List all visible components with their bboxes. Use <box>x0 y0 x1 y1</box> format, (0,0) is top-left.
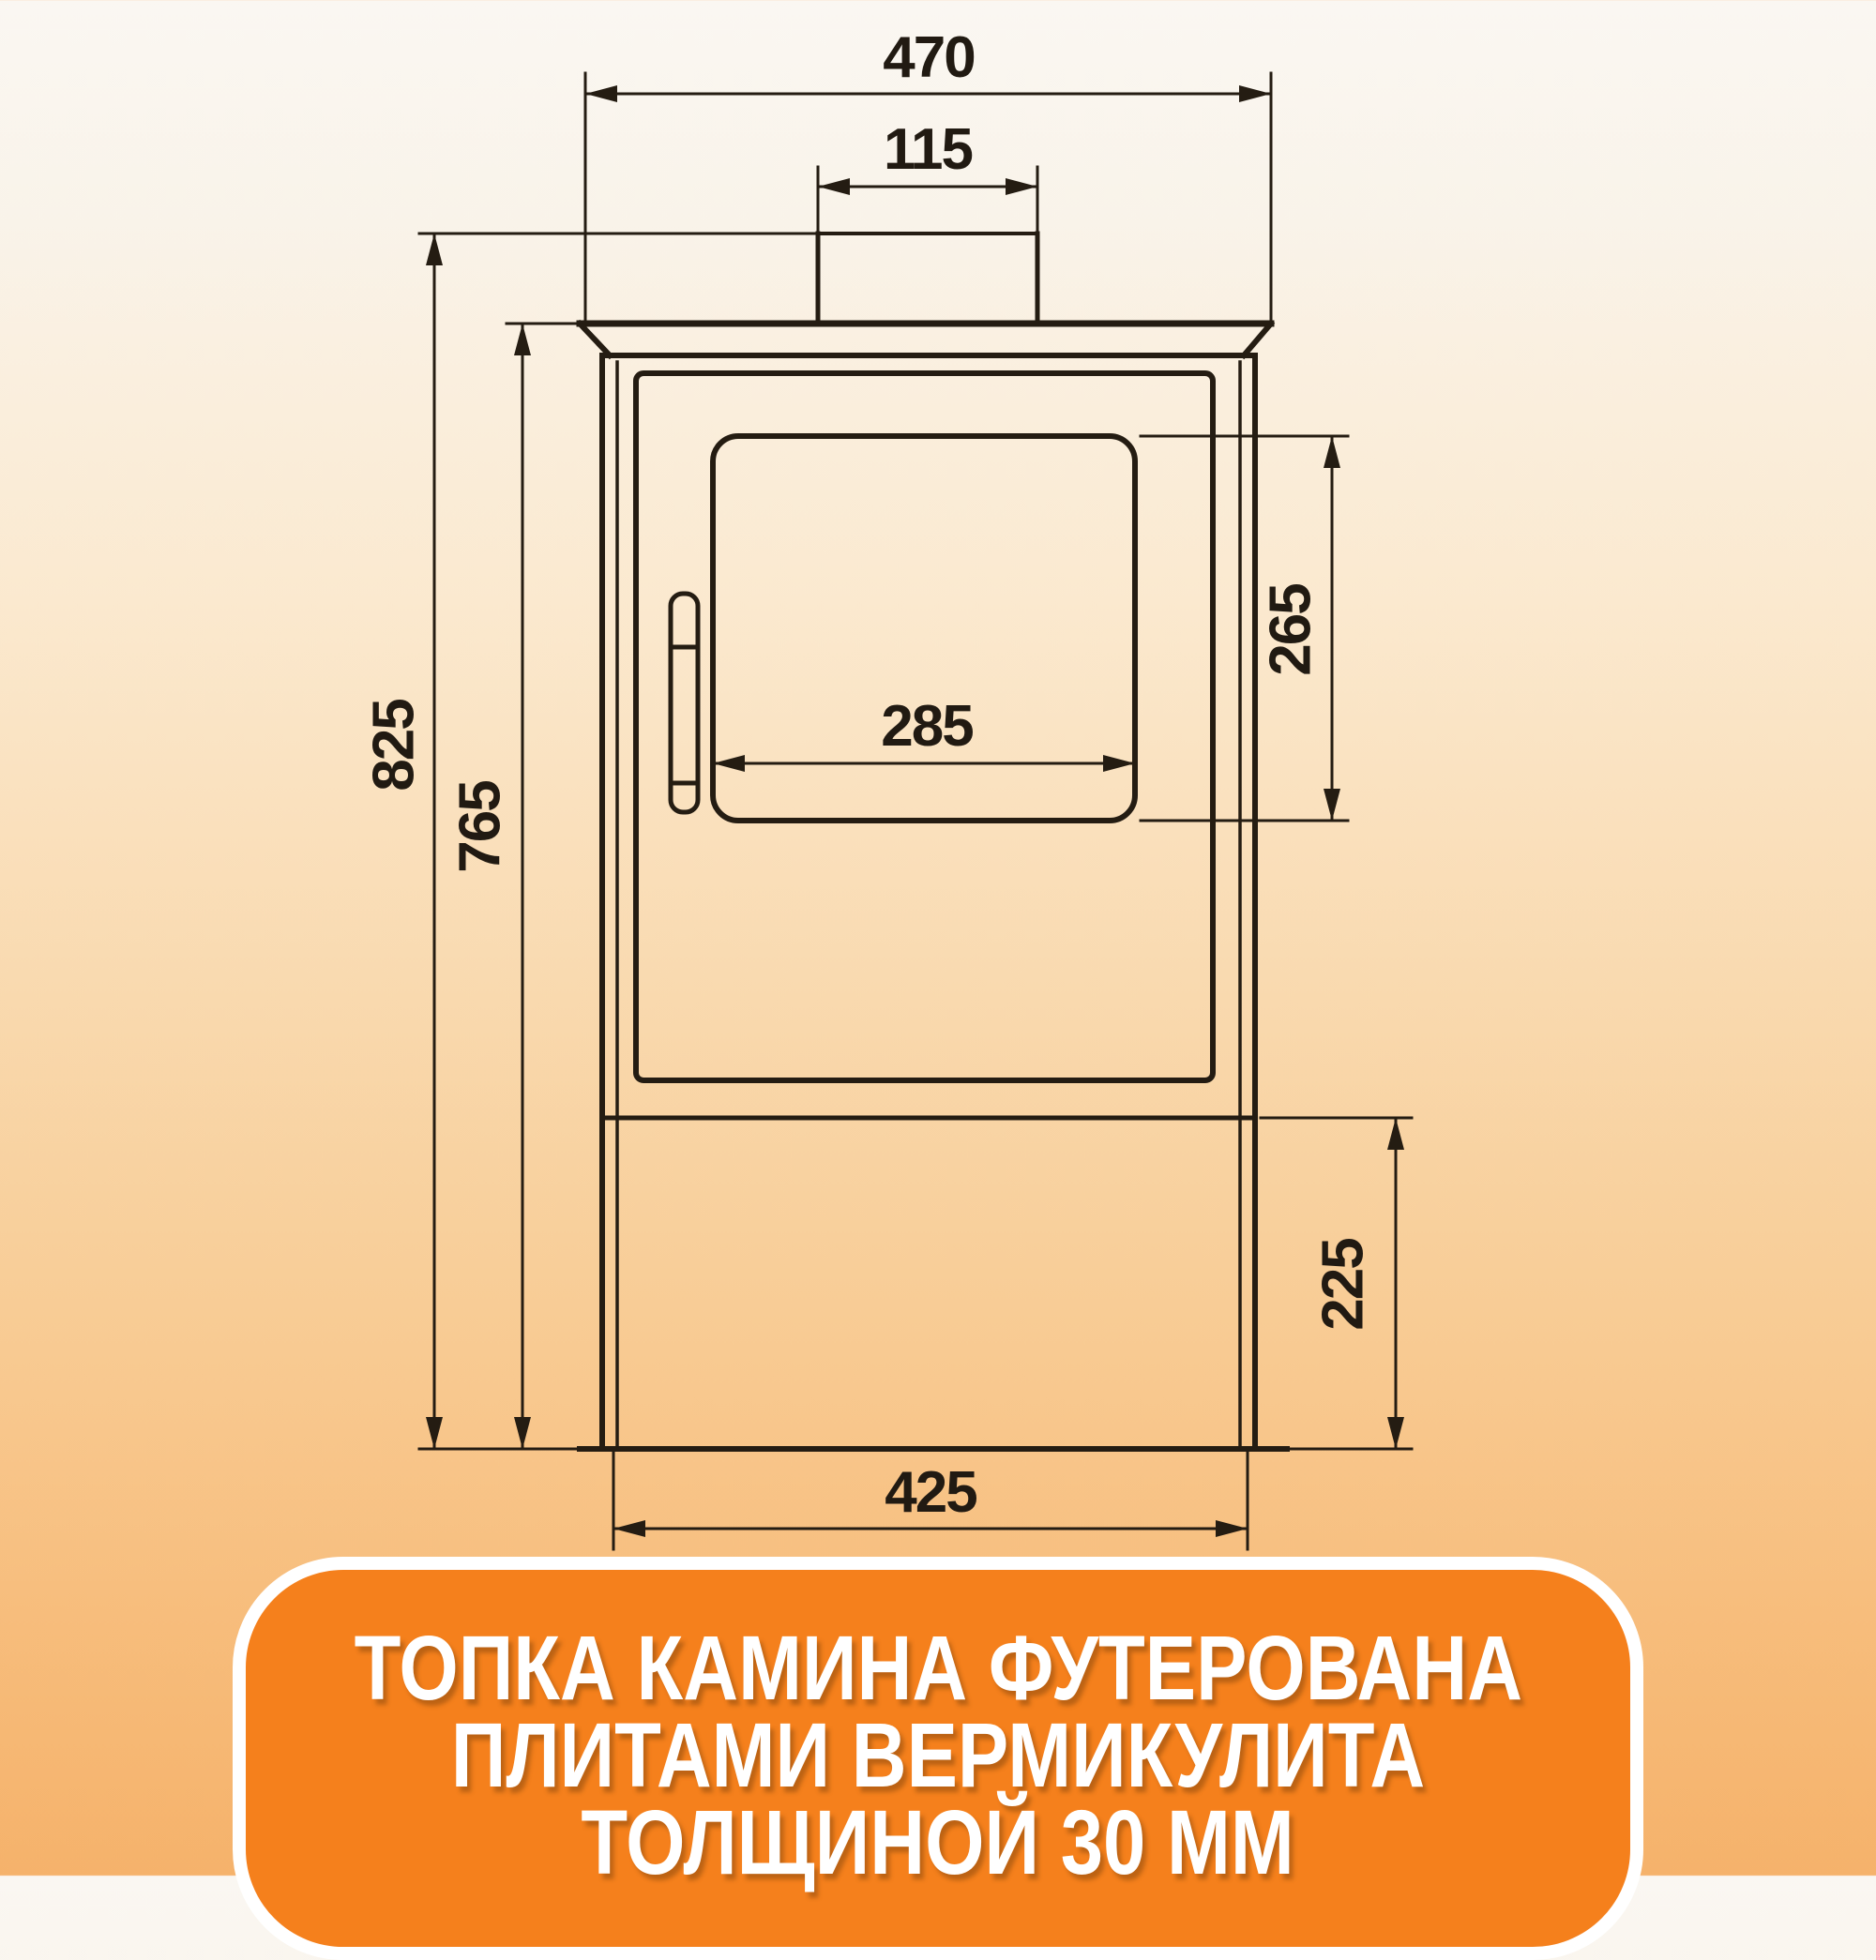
dimension-body-height <box>507 324 580 1449</box>
banner-text-line3: ТОЛЩИНОЙ 30 ММ <box>582 1799 1294 1886</box>
top-plate <box>580 324 1271 355</box>
banner-text-line2: ПЛИТАМИ ВЕРМИКУЛИТА <box>451 1711 1425 1799</box>
banner-text-line1: ТОПКА КАМИНА ФУТЕРОВАНА <box>354 1624 1521 1711</box>
dimension-top-plate-width <box>585 73 1271 319</box>
stove-body <box>602 355 1255 1449</box>
info-banner: ТОПКА КАМИНА ФУТЕРОВАНА ПЛИТАМИ ВЕРМИКУЛ… <box>233 1557 1643 1960</box>
dim-flue-collar-width-label: 115 <box>884 117 973 182</box>
dim-body-height-label: 765 <box>448 781 513 873</box>
dim-overall-height-label: 825 <box>362 700 427 792</box>
dim-glass-width-label: 285 <box>881 694 973 759</box>
page: { "diagram": { "type": "technical-drawin… <box>0 0 1876 1876</box>
door-handle <box>671 594 698 812</box>
dim-base-width-label: 425 <box>885 1460 976 1525</box>
dim-base-height-label: 225 <box>1311 1239 1376 1331</box>
dim-top-plate-width-label: 470 <box>883 25 974 90</box>
dim-glass-height-label: 265 <box>1259 584 1324 676</box>
flue-collar <box>818 234 1037 322</box>
